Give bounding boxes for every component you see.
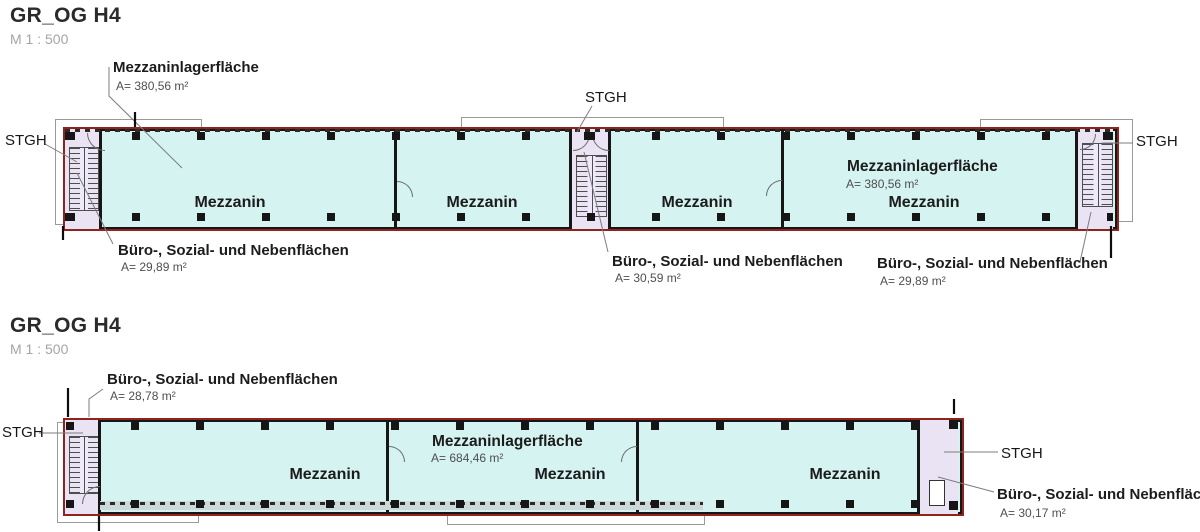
- column-row: [65, 213, 1113, 221]
- door-swing: [621, 446, 637, 462]
- floor-plan-sheet: GR_OG H4 M 1 : 500 Mezzaninlagerfläche A…: [0, 0, 1200, 532]
- callout-area: A= 30,17 m²: [1000, 507, 1066, 520]
- callout-area: A= 684,46 m²: [431, 452, 503, 465]
- callout-area: A= 30,59 m²: [615, 272, 681, 285]
- room-label: Mezzanin: [888, 194, 959, 212]
- callout-area: A= 29,89 m²: [121, 261, 187, 274]
- callout-area: A= 29,89 m²: [880, 275, 946, 288]
- stair-run: [69, 436, 99, 494]
- column-row: [65, 500, 958, 508]
- stairwell-label: STGH: [1001, 446, 1043, 463]
- plan-scale: M 1 : 500: [10, 32, 68, 47]
- room-label: Mezzanin: [809, 466, 880, 484]
- stairwell-label: STGH: [1136, 134, 1178, 151]
- room-label: Mezzanin: [534, 466, 605, 484]
- stair-run: [1082, 143, 1113, 207]
- plan-scale: M 1 : 500: [10, 342, 68, 357]
- column-row: [65, 132, 1113, 140]
- stair-run: [576, 155, 607, 217]
- plan-title: GR_OG H4: [10, 314, 121, 337]
- room-label: Mezzanin: [446, 194, 517, 212]
- callout-label-buero: Büro-, Sozial- und Nebenflächen: [877, 256, 1108, 273]
- door-swing: [397, 181, 413, 197]
- callout-label-buero: Büro-, Sozial- und Nebenflächen: [107, 372, 338, 389]
- stairwell-label: STGH: [585, 90, 627, 107]
- callout-area: A= 28,78 m²: [110, 390, 176, 403]
- callout-label-mezzaninlagerflaeche: Mezzaninlagerfläche: [847, 158, 998, 175]
- stairwell-label: STGH: [5, 133, 47, 150]
- callout-label-buero: Büro-, Sozial- und Nebenflächen: [997, 487, 1200, 504]
- column-row: [65, 422, 958, 430]
- room-label: Mezzanin: [194, 194, 265, 212]
- stair-run: [69, 147, 99, 211]
- callout-label-buero: Büro-, Sozial- und Nebenflächen: [612, 254, 843, 271]
- callout-area: A= 380,56 m²: [116, 80, 188, 93]
- callout-label-mezzaninlagerflaeche: Mezzaninlagerfläche: [113, 60, 259, 77]
- room-label: Mezzanin: [289, 466, 360, 484]
- room-label: Mezzanin: [661, 194, 732, 212]
- callout-area: A= 380,56 m²: [846, 178, 918, 191]
- door-swing: [766, 180, 782, 196]
- door-swing: [389, 446, 405, 462]
- callout-label-buero: Büro-, Sozial- und Nebenflächen: [118, 243, 349, 260]
- callout-label-mezzaninlagerflaeche: Mezzaninlagerfläche: [432, 433, 583, 450]
- stairwell-label: STGH: [2, 425, 44, 442]
- plan-title: GR_OG H4: [10, 4, 121, 27]
- building-outline-top: [63, 127, 1119, 231]
